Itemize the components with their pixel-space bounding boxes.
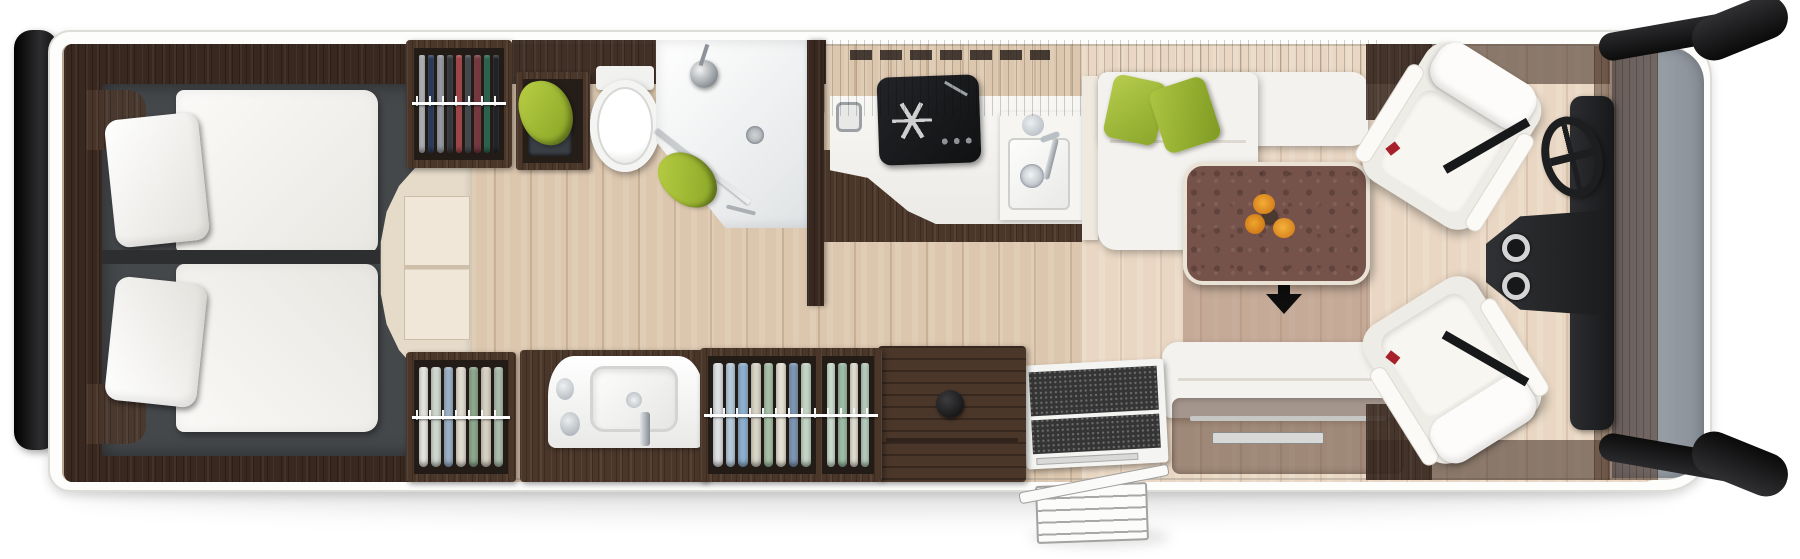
- flower-1: [1253, 194, 1275, 214]
- sink-drain: [1020, 164, 1044, 188]
- vanity-soap-1: [556, 378, 574, 400]
- bedroom-step-top: [404, 196, 470, 340]
- wardrobe-bottom-left: [406, 352, 516, 482]
- wardrobe-top: [406, 40, 512, 168]
- toilet: [588, 66, 662, 174]
- vanity-faucet: [640, 412, 650, 446]
- wardrobe-rail: [412, 416, 510, 419]
- bedroom-block: [64, 44, 454, 482]
- flower-3: [1273, 218, 1295, 238]
- kitchen-sink-unit: [1000, 112, 1082, 220]
- sideboard-cabinet: [878, 346, 1026, 482]
- doormat-upper: [1029, 366, 1159, 417]
- wardrobe-rail: [704, 414, 878, 417]
- wardrobe-rail: [412, 102, 506, 105]
- vanity-counter: [548, 356, 704, 448]
- mirror-head: [1685, 425, 1794, 503]
- doormat-lower: [1031, 414, 1161, 455]
- wardrobe-bottom-mid: [700, 348, 882, 482]
- dining-table: [1183, 162, 1370, 285]
- vanity-drain: [626, 392, 642, 408]
- door-sill: [1036, 453, 1138, 465]
- twin-bed-lower-duvet: [176, 264, 378, 432]
- vehicle-body: [48, 30, 1712, 492]
- cup-holder-2: [1502, 272, 1530, 300]
- cup-holder-1: [1502, 234, 1530, 262]
- toilet-bowl: [590, 80, 660, 172]
- hob-knobs: [941, 136, 973, 145]
- sink-soap: [1022, 114, 1044, 136]
- twin-bed-lower-pillow: [104, 276, 208, 409]
- bed-center-gap: [102, 250, 380, 264]
- arrow-head: [1266, 294, 1302, 314]
- sideboard-knob: [936, 390, 964, 418]
- overhead-vent: [850, 50, 1050, 60]
- motorhome-floorplan: [0, 0, 1800, 559]
- lounge-divider: [1082, 76, 1098, 240]
- entry-door: [1021, 358, 1168, 469]
- flower-2: [1245, 214, 1265, 234]
- bathroom-kitchen-partition: [807, 40, 824, 306]
- twin-bed-upper-pillow: [104, 111, 211, 248]
- shower-head: [690, 60, 718, 88]
- mirror-head: [1685, 0, 1794, 67]
- shower-drain: [746, 126, 764, 144]
- bench-seam: [1178, 378, 1386, 381]
- sideboard-shelf-line: [886, 438, 1018, 442]
- bench-rail-1: [1190, 416, 1386, 421]
- side-mirror-bottom: [1598, 422, 1798, 494]
- vanity-soap-2: [560, 412, 580, 436]
- side-mirror-top: [1598, 0, 1798, 70]
- bench-rail-2: [1212, 432, 1324, 444]
